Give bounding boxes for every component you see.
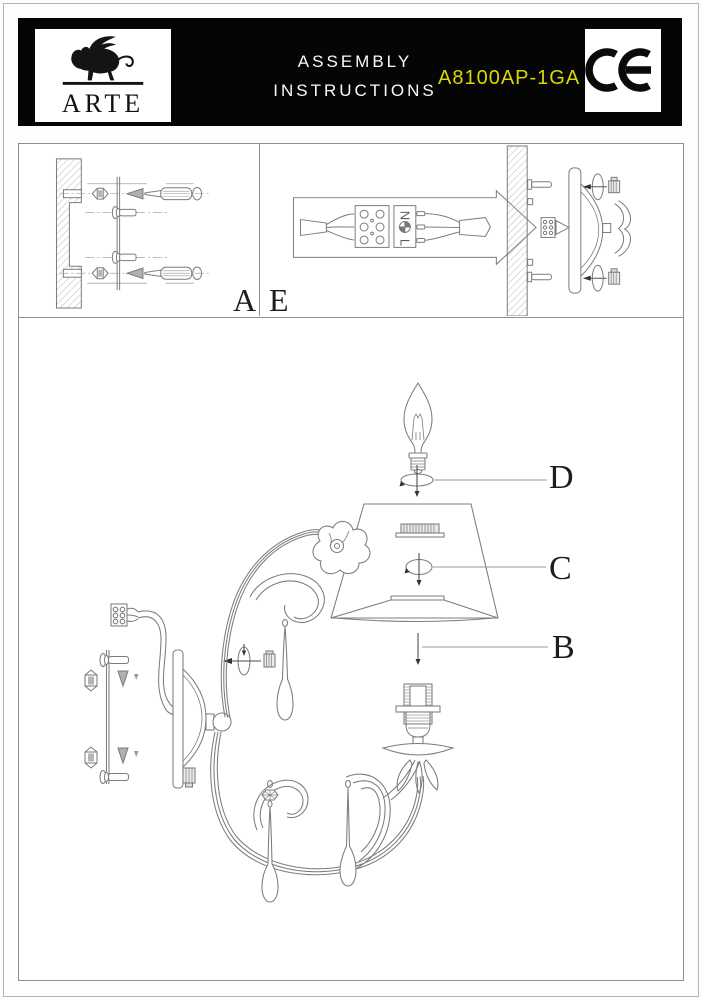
mounting-screw [100, 771, 129, 784]
wall-anchor [92, 268, 108, 279]
crystal-teardrop [277, 620, 293, 721]
rotation-indicator-nut [223, 644, 261, 675]
wall-screw [528, 272, 552, 281]
document-title: ASSEMBLY INSTRUCTIONS [255, 47, 455, 105]
insert-arrow-b [416, 633, 421, 665]
panel-a-mounting-diagram [19, 144, 260, 316]
wall-anchor [92, 188, 108, 199]
panel-e-wiring-diagram: N L [260, 144, 682, 316]
model-number: A8100AP-1GA [438, 67, 580, 90]
header-bar: ARTE ASSEMBLY INSTRUCTIONS A8100AP-1GA C… [18, 18, 682, 126]
neutral-wire-label: N [399, 207, 412, 225]
mounting-screw [112, 207, 136, 219]
terminal-block [355, 206, 389, 248]
wall-screw [528, 180, 552, 189]
figure-label-a: A [233, 284, 256, 316]
bobeche [383, 744, 453, 756]
lamp-socket [383, 684, 453, 793]
arte-logo: ARTE [35, 29, 171, 122]
knurled-nut [609, 269, 620, 284]
canopy-plate [173, 650, 183, 788]
connector-block [541, 218, 569, 238]
screwdriver [127, 187, 202, 200]
wall-lamp-exploded-drawing [19, 318, 683, 980]
figure-label-e: E [269, 284, 289, 316]
step-label-b: B [552, 631, 575, 665]
ce-mark-icon [585, 29, 661, 112]
crystal-bead-and-teardrop [262, 781, 278, 903]
title-line-2: INSTRUCTIONS [255, 76, 455, 105]
fixture-wires [417, 212, 491, 243]
rotation-indicator [583, 265, 607, 291]
mounting-screw [100, 654, 129, 667]
crystal-teardrop [340, 781, 356, 887]
brand-name: ARTE [62, 91, 144, 117]
wall-anchor [85, 670, 97, 691]
instruction-sheet: ARTE ASSEMBLY INSTRUCTIONS A8100AP-1GA C… [0, 0, 702, 1000]
centerlines [59, 194, 208, 274]
mounting-screw [112, 251, 136, 263]
mounting-bracket [106, 650, 110, 784]
candle-bulb [404, 383, 432, 474]
knurled-nut [264, 651, 275, 667]
rotation-indicator [583, 174, 607, 200]
terminal-block [111, 604, 127, 626]
arte-winged-lion-icon [47, 32, 159, 90]
step-label-c: C [549, 552, 572, 586]
line-wire-label: L [399, 234, 412, 252]
wall-section [56, 159, 81, 308]
ce-mark: CE [585, 29, 661, 112]
knurled-nut [609, 177, 620, 192]
step-label-d: D [549, 461, 574, 495]
insert-direction-cones [118, 671, 139, 763]
canopy-dome [183, 669, 206, 767]
title-line-1: ASSEMBLY [255, 47, 455, 76]
wall-canopy-assembly [85, 604, 231, 788]
knurled-nut [183, 768, 195, 787]
mounting-drawing [19, 144, 259, 316]
wall-section [507, 146, 527, 316]
supply-cable [300, 214, 354, 240]
main-assembly-diagram [18, 317, 684, 981]
steps-panel-row: N L [18, 143, 684, 319]
screwdriver [127, 267, 202, 280]
wall-anchor [85, 747, 97, 768]
wiring-drawing [260, 144, 682, 316]
